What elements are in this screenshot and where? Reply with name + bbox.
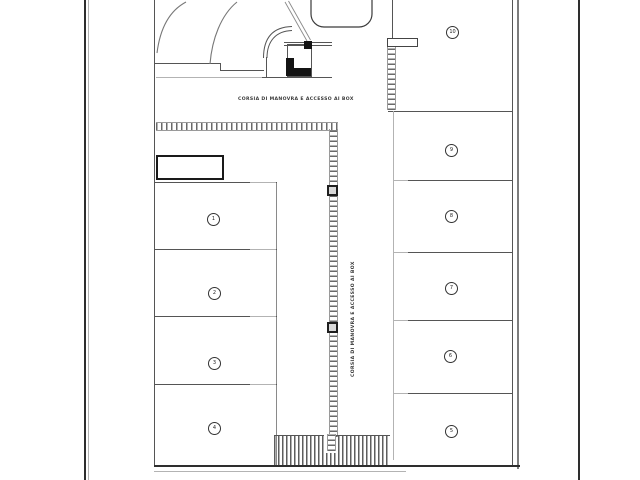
aisle-label-vertical: CORSIA DI MANOVRA E ACCESSO AI BOX (351, 261, 356, 377)
right-boxes-front-wall (393, 111, 394, 460)
aisle-hatch-vertical-end (327, 434, 336, 451)
left-box3-door (250, 316, 276, 317)
core-thick-wall-side (286, 58, 294, 76)
right-box8-door (393, 180, 408, 181)
turning-island-outline (311, 0, 372, 27)
box-number-1: 1 (207, 213, 220, 226)
box10-beam (387, 38, 418, 47)
box-number-9: 9 (445, 144, 458, 157)
curves-layer (0, 0, 640, 480)
core-wall-bottom (262, 77, 332, 78)
right-box7-door (393, 252, 408, 253)
box-number-6: 6 (444, 350, 457, 363)
right-column-top-wall (388, 111, 513, 112)
ramp-arc-2 (210, 2, 237, 64)
right-box6-door (393, 320, 408, 321)
left-box4-door (250, 384, 276, 385)
right-box7-top-wall (408, 252, 513, 253)
core-wall-left (266, 57, 267, 78)
box-number-8: 8 (445, 210, 458, 223)
box-number-5: 5 (445, 425, 458, 438)
aisle-pillar-upper (327, 185, 338, 196)
aisle-label-horizontal: CORSIA DI MANOVRA E ACCESSO AI BOX (238, 97, 354, 102)
box-number-3: 3 (208, 357, 221, 370)
box-number-2: 2 (208, 287, 221, 300)
ramp-diagonal-1 (285, 2, 307, 41)
service-room (156, 155, 224, 180)
right-box5-door (393, 393, 408, 394)
aisle-hatch-vertical (329, 129, 338, 437)
aisle-pillar-lower (327, 322, 338, 333)
box10-hatch-wall (387, 47, 396, 110)
right-box8-top-wall (408, 180, 513, 181)
right-box6-top-wall (408, 320, 513, 321)
ramp-arc-1 (157, 2, 186, 53)
left-box2-door (250, 249, 276, 250)
aisle-hatch-horizontal (156, 122, 338, 131)
left-boxes-front-wall (276, 182, 278, 465)
right-box5-top-wall (408, 393, 513, 394)
left-box1-door (250, 182, 276, 183)
box10-wall-left (392, 0, 393, 43)
box-number-10: 10 (446, 26, 459, 39)
ramp-diagonal-2 (289, 1, 311, 40)
box-number-4: 4 (208, 422, 221, 435)
box-number-7: 7 (445, 282, 458, 295)
drawing-sheet: CORSIA DI MANOVRA E ACCESSO AI BOX CORSI… (0, 0, 640, 480)
core-column-block (304, 41, 312, 49)
